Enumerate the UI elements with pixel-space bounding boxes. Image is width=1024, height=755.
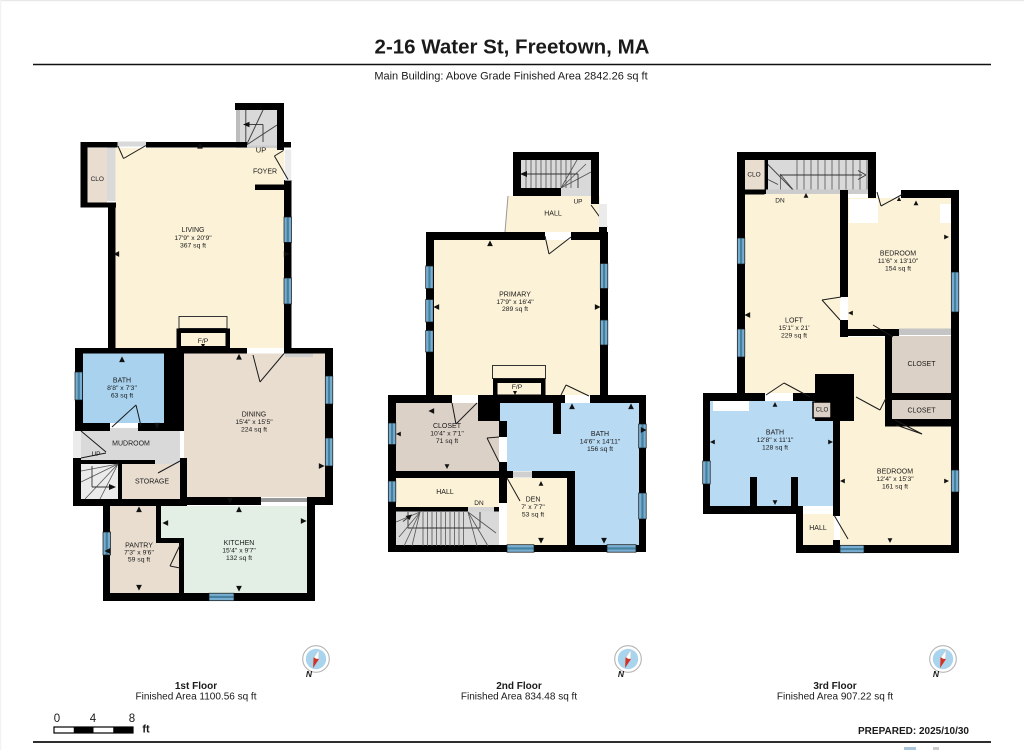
svg-text:132 sq ft: 132 sq ft <box>226 555 252 562</box>
svg-text:BEDROOM: BEDROOM <box>877 469 913 476</box>
svg-text:KITCHEN: KITCHEN <box>224 540 255 547</box>
svg-text:7'3" x 9'6": 7'3" x 9'6" <box>124 550 154 557</box>
svg-text:Finished Area 834.48 sq ft: Finished Area 834.48 sq ft <box>461 692 577 703</box>
svg-text:10'4" x 7'1": 10'4" x 7'1" <box>430 431 464 438</box>
svg-text:BATH: BATH <box>113 378 131 385</box>
svg-text:MUDROOM: MUDROOM <box>112 441 150 448</box>
svg-text:LOFT: LOFT <box>785 318 804 325</box>
svg-text:128 sq ft: 128 sq ft <box>762 445 788 452</box>
svg-text:59 sq ft: 59 sq ft <box>128 557 150 564</box>
svg-text:CLO: CLO <box>747 172 760 179</box>
svg-text:HALL: HALL <box>809 525 827 532</box>
svg-text:8'8" x 7'3": 8'8" x 7'3" <box>107 385 137 392</box>
svg-text:BATH: BATH <box>591 431 609 438</box>
svg-text:BEDROOM: BEDROOM <box>880 251 916 258</box>
svg-text:12'8" x 11'1": 12'8" x 11'1" <box>757 437 794 444</box>
svg-text:154 sq ft: 154 sq ft <box>885 266 911 273</box>
svg-text:DN: DN <box>775 198 785 205</box>
svg-text:N: N <box>618 669 625 679</box>
svg-text:PRIMARY: PRIMARY <box>499 291 531 298</box>
svg-text:ft: ft <box>142 724 150 736</box>
svg-text:0: 0 <box>54 713 60 725</box>
svg-text:156 sq ft: 156 sq ft <box>587 446 613 453</box>
svg-text:2nd Floor: 2nd Floor <box>496 681 542 692</box>
svg-text:7' x 7'7": 7' x 7'7" <box>521 504 545 511</box>
svg-text:CLOSET: CLOSET <box>907 361 936 368</box>
svg-text:289 sq ft: 289 sq ft <box>502 306 528 313</box>
svg-text:17'9" x 20'9": 17'9" x 20'9" <box>174 235 212 242</box>
svg-text:229 sq ft: 229 sq ft <box>781 333 807 340</box>
svg-text:4: 4 <box>90 713 97 725</box>
svg-text:3rd Floor: 3rd Floor <box>813 681 856 692</box>
svg-text:15'4" x 15'5": 15'4" x 15'5" <box>235 419 273 426</box>
svg-text:12'4" x 15'3": 12'4" x 15'3" <box>876 476 914 483</box>
svg-text:15'1" x 21': 15'1" x 21' <box>778 325 809 332</box>
svg-text:224 sq ft: 224 sq ft <box>241 427 267 434</box>
svg-text:N: N <box>306 669 313 679</box>
svg-text:17'9" x 16'4": 17'9" x 16'4" <box>496 299 534 306</box>
svg-text:DEN: DEN <box>526 497 541 504</box>
svg-text:15'4" x 9'7": 15'4" x 9'7" <box>222 548 256 555</box>
svg-text:LIVING: LIVING <box>182 227 205 234</box>
svg-text:14'6" x 14'11": 14'6" x 14'11" <box>580 439 621 446</box>
svg-text:HALL: HALL <box>544 211 562 218</box>
svg-text:BATH: BATH <box>766 430 784 437</box>
svg-text:FOYER: FOYER <box>253 169 277 176</box>
svg-text:1st Floor: 1st Floor <box>175 681 217 692</box>
svg-text:UP: UP <box>573 199 582 206</box>
svg-text:CLOSET: CLOSET <box>907 408 936 415</box>
svg-text:53 sq ft: 53 sq ft <box>522 512 544 519</box>
svg-text:HALL: HALL <box>436 489 454 496</box>
svg-text:PANTRY: PANTRY <box>125 543 153 550</box>
svg-text:161 sq ft: 161 sq ft <box>882 484 908 491</box>
svg-text:Finished Area 1100.56 sq ft: Finished Area 1100.56 sq ft <box>135 692 256 703</box>
svg-text:Main Building: Above Grade Fin: Main Building: Above Grade Finished Area… <box>374 71 647 83</box>
svg-text:DN: DN <box>474 500 484 507</box>
svg-text:63 sq ft: 63 sq ft <box>111 393 133 400</box>
svg-text:Finished Area 907.22 sq ft: Finished Area 907.22 sq ft <box>777 692 893 703</box>
svg-text:CLO: CLO <box>816 407 829 414</box>
svg-text:367 sq ft: 367 sq ft <box>180 243 206 250</box>
svg-text:11'6" x 13'10": 11'6" x 13'10" <box>878 258 919 265</box>
svg-text:N: N <box>933 669 940 679</box>
svg-text:UP: UP <box>256 146 266 155</box>
svg-text:F/P: F/P <box>198 338 209 345</box>
svg-text:8: 8 <box>129 713 135 725</box>
svg-text:PREPARED: 2025/10/30: PREPARED: 2025/10/30 <box>858 726 969 737</box>
svg-text:71 sq ft: 71 sq ft <box>436 438 458 445</box>
svg-text:CLO: CLO <box>91 176 104 183</box>
svg-text:CLOSET: CLOSET <box>433 423 462 430</box>
svg-text:2-16 Water St, Freetown, MA: 2-16 Water St, Freetown, MA <box>375 36 650 59</box>
svg-text:UP: UP <box>91 451 100 458</box>
svg-text:STORAGE: STORAGE <box>135 479 169 486</box>
svg-text:DINING: DINING <box>242 412 267 419</box>
svg-text:F/P: F/P <box>512 384 523 391</box>
